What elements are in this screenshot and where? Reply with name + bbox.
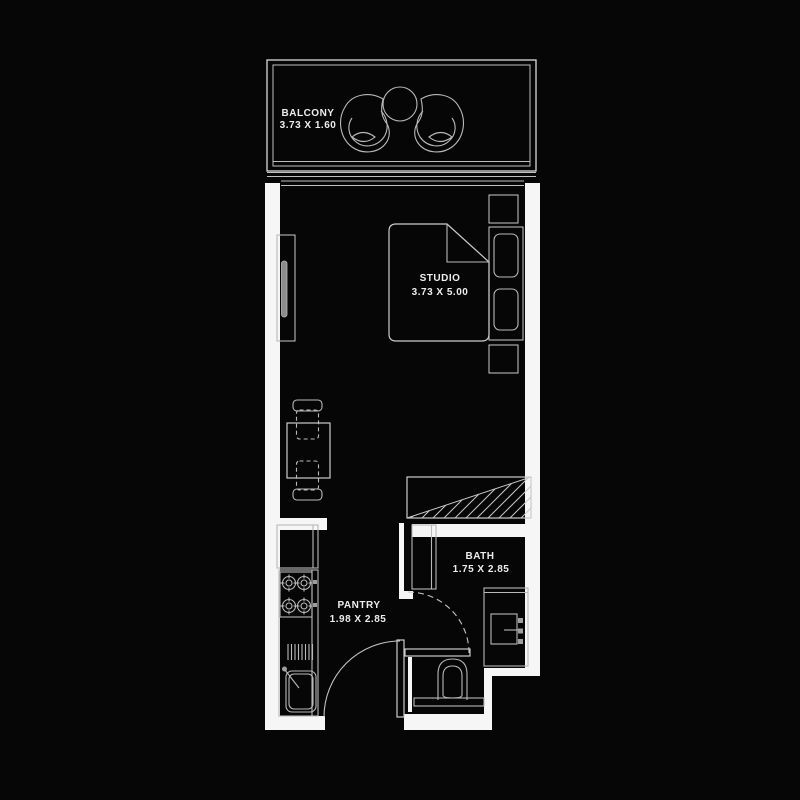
studio-label: STUDIO — [420, 273, 461, 284]
burner-icon — [296, 598, 313, 615]
nightstand-bottom-icon — [489, 345, 518, 373]
bath-label: BATH — [465, 551, 494, 562]
walls — [265, 183, 540, 730]
bath-stub-wall — [399, 523, 404, 598]
pantry-label: PANTRY — [338, 600, 381, 611]
notch-wall-vertical — [484, 668, 492, 730]
pillow-bottom-icon — [494, 289, 518, 330]
nightstand-top-icon — [489, 195, 518, 223]
dining-chair-top-back — [293, 400, 322, 411]
vanity-sink-icon — [484, 588, 528, 666]
burner-icon — [281, 598, 298, 615]
bottom-wall-left — [265, 716, 325, 730]
pantry-dimensions: 1.98 X 2.85 — [330, 614, 387, 625]
pillow-top-icon — [494, 234, 518, 277]
stove-hob-icon — [280, 572, 317, 617]
toilet-icon — [414, 659, 484, 706]
kitchen-counter-upper-icon — [277, 525, 318, 568]
toilet-cistern — [414, 698, 484, 706]
floor-plan: BALCONY 3.73 X 1.60 — [0, 0, 800, 800]
dining-set-icon — [287, 400, 330, 500]
burner-icon — [281, 575, 298, 592]
burner-icon — [296, 575, 313, 592]
bath-door-icon — [405, 592, 470, 656]
balcony-lounge-chair-right-icon — [415, 95, 464, 152]
dish-rack-icon — [288, 644, 313, 660]
bath-door-swing-arc — [408, 592, 469, 653]
entry-door-icon — [324, 640, 404, 717]
dining-chair-bottom-back — [293, 489, 322, 500]
dining-table-icon — [287, 423, 330, 478]
right-wall — [525, 183, 540, 676]
bath-dimensions: 1.75 X 2.85 — [453, 564, 510, 575]
balcony-round-table-icon — [383, 87, 417, 121]
bottom-wall-mid — [404, 714, 492, 730]
toilet-partition-wall — [408, 657, 412, 712]
balcony-lounge-chair-left-icon — [341, 95, 390, 152]
entry-door-leaf — [397, 640, 404, 717]
dining-chair-top-seat — [297, 410, 319, 439]
studio-room: STUDIO 3.73 X 5.00 — [277, 195, 567, 522]
entry-door-swing-arc — [324, 641, 400, 717]
wardrobe-hatch-icon — [407, 472, 567, 522]
tv-icon — [282, 261, 288, 317]
balcony-dimensions: 3.73 X 1.60 — [280, 120, 337, 131]
sliding-window-icon — [267, 173, 536, 186]
bath-door-leaf — [405, 649, 470, 656]
pantry-room: PANTRY 1.98 X 2.85 — [277, 525, 404, 717]
balcony-room: BALCONY 3.73 X 1.60 — [267, 60, 536, 171]
faucet-icon — [285, 670, 299, 688]
studio-dimensions: 3.73 X 5.00 — [412, 287, 469, 298]
bath-top-wall — [412, 524, 526, 537]
floor-plan-drawing: BALCONY 3.73 X 1.60 — [0, 0, 800, 800]
kitchen-sink-icon — [282, 667, 316, 713]
dining-chair-bottom-seat — [297, 461, 319, 490]
double-bed-icon — [389, 195, 523, 373]
bath-room: BATH 1.75 X 2.85 — [405, 525, 528, 706]
left-wall — [265, 183, 280, 730]
balcony-label: BALCONY — [282, 108, 335, 119]
notch-wall-horizontal — [484, 668, 540, 676]
